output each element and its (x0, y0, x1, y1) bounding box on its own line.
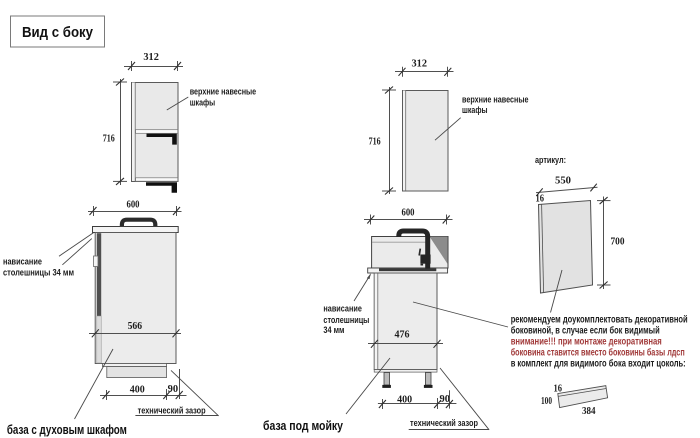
svg-text:технический зазор: технический зазор (410, 418, 478, 428)
svg-text:312: 312 (412, 58, 428, 70)
svg-text:база с духовым шкафом: база с духовым шкафом (7, 422, 127, 437)
svg-text:Вид с боку: Вид с боку (22, 24, 94, 41)
svg-text:600: 600 (402, 207, 415, 219)
svg-text:боковиной, в случае если бок в: боковиной, в случае если бок видимый (511, 324, 660, 336)
svg-text:в комплект для видимого бока в: в комплект для видимого бока входит цоко… (511, 357, 686, 369)
svg-text:верхние навесные: верхние навесные (462, 95, 529, 105)
svg-text:верхние навесные: верхние навесные (190, 87, 257, 97)
svg-text:600: 600 (127, 199, 140, 211)
svg-text:716: 716 (369, 136, 381, 148)
svg-text:34 мм: 34 мм (323, 325, 344, 335)
svg-text:566: 566 (128, 320, 143, 332)
svg-text:16: 16 (554, 383, 563, 395)
svg-text:700: 700 (611, 236, 625, 248)
svg-text:476: 476 (395, 329, 410, 341)
svg-text:технический зазор: технический зазор (138, 406, 206, 416)
svg-text:нависание: нависание (323, 303, 362, 313)
svg-text:нависание: нависание (3, 257, 42, 267)
svg-text:столешницы: столешницы (323, 315, 369, 325)
svg-text:внимание!!! при монтаже декора: внимание!!! при монтаже декоративная (511, 336, 662, 347)
svg-text:716: 716 (103, 133, 115, 145)
svg-text:400: 400 (130, 383, 145, 395)
svg-text:312: 312 (143, 51, 159, 63)
svg-text:550: 550 (555, 174, 571, 186)
svg-text:рекомендуем доукомплектовать д: рекомендуем доукомплектовать декоративно… (511, 314, 688, 325)
svg-text:шкафы: шкафы (190, 97, 216, 107)
svg-text:16: 16 (536, 192, 545, 204)
svg-text:шкафы: шкафы (462, 105, 488, 115)
svg-text:384: 384 (582, 405, 596, 417)
svg-text:артикул:: артикул: (535, 155, 566, 165)
svg-text:столешницы 34 мм: столешницы 34 мм (3, 267, 74, 277)
svg-text:база под мойку: база под мойку (263, 418, 344, 433)
svg-text:100: 100 (541, 395, 552, 407)
svg-text:боковина ставится вместо боков: боковина ставится вместо боковины базы л… (511, 346, 685, 358)
